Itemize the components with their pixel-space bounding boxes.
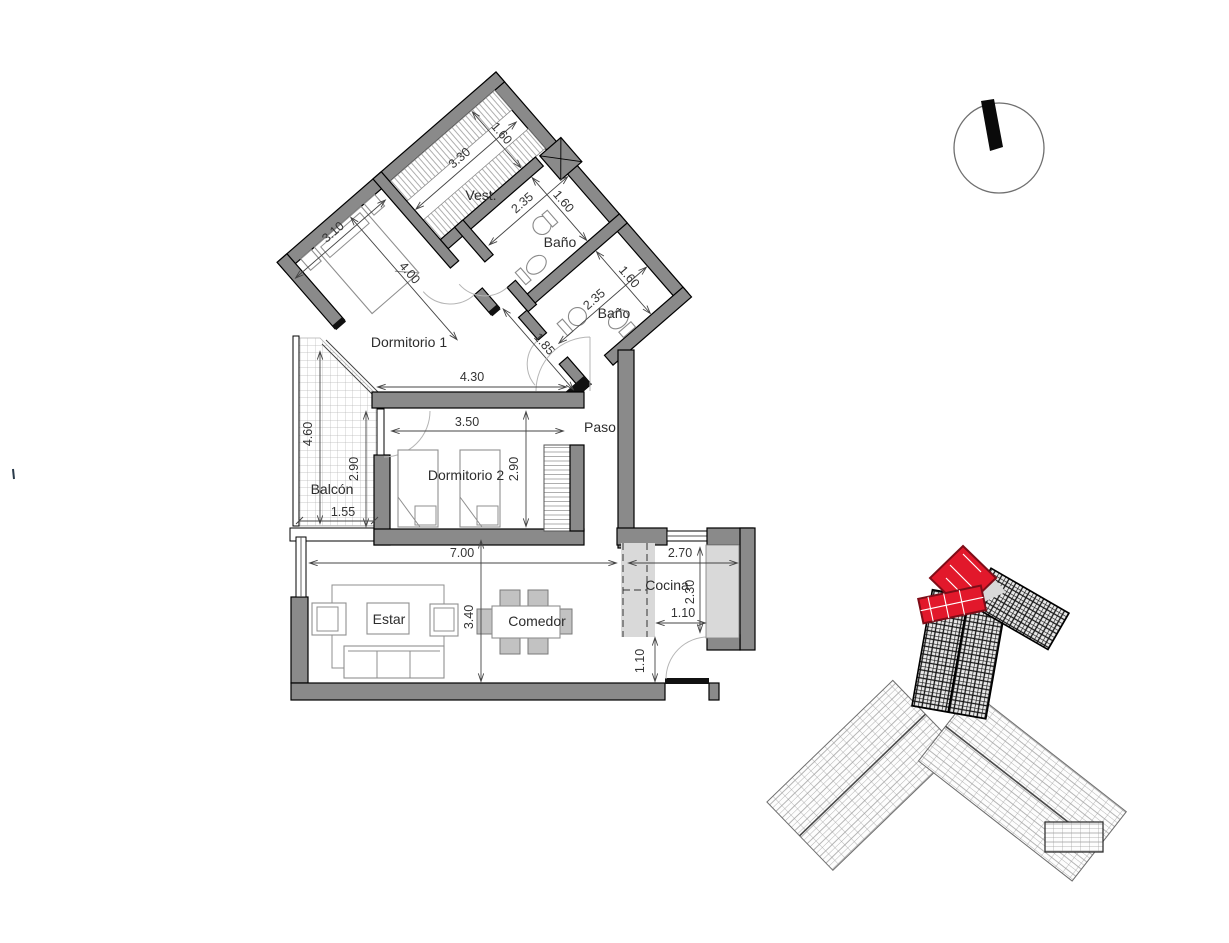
wall-dorm2-top [372, 392, 584, 408]
estar-furniture [312, 585, 458, 678]
sofa [344, 646, 444, 678]
dim-living-width: 7.00 [450, 546, 474, 560]
dim-bano1-width: 1.60 [550, 188, 577, 216]
north-needle [981, 99, 1003, 151]
counter-right [706, 545, 739, 638]
room-label-dormitorio2: Dormitorio 2 [428, 467, 504, 483]
wall-bottom-b [709, 683, 719, 700]
toilet-icon [523, 252, 550, 279]
wall-bottom-a [291, 683, 665, 700]
dim-bano2-width: 1.60 [616, 263, 643, 291]
chair [528, 637, 548, 654]
wall-living-left [291, 597, 308, 683]
room-label-cocina: Cocina [645, 577, 689, 593]
estar-window [296, 537, 306, 597]
dim-living-depth: 3.40 [462, 605, 476, 629]
cocina-window [667, 531, 707, 541]
floorplan-canvas: 3.30 1.60 3.10 4.00 2.35 1.60 2.35 1.60 … [0, 0, 1229, 943]
dim-cocina-width: 2.70 [668, 546, 692, 560]
door-threshold [665, 678, 709, 684]
balcony-railing [293, 336, 299, 526]
dim-cocina-pass: 1.10 [671, 606, 695, 620]
site-key-plan [767, 546, 1126, 881]
dim-balcon-length: 4.60 [301, 422, 315, 446]
dorm2-wardrobe [544, 445, 570, 531]
dim-bano1-depth: 2.35 [509, 190, 537, 217]
chair [477, 609, 493, 634]
stray-mark [13, 469, 14, 479]
chair [500, 637, 520, 654]
dim-cocina-door: 1.10 [633, 649, 647, 673]
wall-cocina-top-left [617, 528, 667, 545]
dim-dorm2-depth-right: 2.90 [507, 457, 521, 481]
chair [528, 590, 548, 607]
bed-single [460, 450, 500, 527]
door-arc-entry [666, 637, 708, 679]
wall-wardrobe-side [570, 445, 584, 531]
north-arrow-icon [954, 99, 1044, 193]
dim-zone-width: 4.30 [460, 370, 484, 384]
bed-single [398, 450, 438, 527]
floorplan-page: 3.30 1.60 3.10 4.00 2.35 1.60 2.35 1.60 … [0, 0, 1229, 943]
room-label-estar: Estar [373, 611, 406, 627]
door-arc-dorm1 [423, 268, 474, 319]
chair [500, 590, 520, 607]
room-label-comedor: Comedor [508, 613, 566, 629]
room-label-bano1: Baño [544, 234, 577, 250]
armchair [312, 603, 346, 635]
room-label-vest: Vest. [465, 187, 496, 203]
room-label-balcon: Balcón [311, 481, 354, 497]
room-label-bano2: Baño [598, 305, 631, 321]
wall-cocina-right [740, 528, 755, 650]
key-unit-end [1045, 822, 1103, 852]
wall-paso-right [618, 350, 634, 548]
dim-dorm2-width: 3.50 [455, 415, 479, 429]
main-floor-plan: 3.30 1.60 3.10 4.00 2.35 1.60 2.35 1.60 … [13, 68, 755, 700]
room-label-dormitorio1: Dormitorio 1 [371, 334, 447, 350]
dim-balcon-width: 1.55 [331, 505, 355, 519]
dim-dorm2-depth-left: 2.90 [347, 457, 361, 481]
armchair [430, 604, 458, 636]
room-label-paso: Paso [584, 419, 616, 435]
